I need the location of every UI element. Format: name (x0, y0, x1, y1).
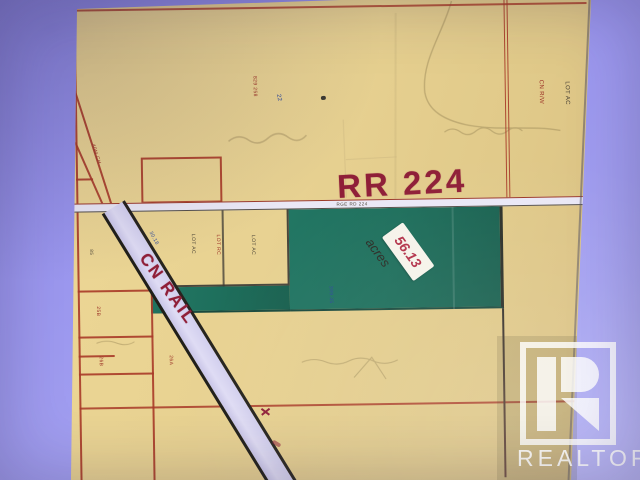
survey-dot (321, 96, 326, 100)
realtor-wordmark: REALTOR® (517, 445, 640, 472)
right-rail-row-label: CN R/W (538, 80, 544, 104)
dimension-label: 399.35 (328, 286, 334, 304)
right-lot-label: LOT AC (564, 81, 570, 105)
edge-step (76, 178, 93, 180)
tiny-label: 85 (89, 249, 94, 255)
tiny-label: 26B (98, 356, 104, 366)
tiny-label: 22 (275, 94, 282, 102)
realtor-r-bowl (561, 357, 599, 392)
lot-label: LOT AC (250, 235, 256, 255)
rail-red-mark (260, 407, 270, 416)
listing-photo: LOT AC LOT RC LOT AC 40M CH 829 258 22 (0, 0, 640, 480)
lot-label: LOT AC (190, 234, 196, 254)
tiny-label: 829 258 (252, 76, 258, 97)
parcel-outline-red (141, 156, 223, 203)
tiny-label: 25B (95, 306, 101, 316)
subject-parcel-main (289, 206, 504, 311)
lot-label-red: LOT RC (215, 234, 221, 255)
realtor-wordmark-text: REALTOR (517, 445, 640, 471)
tiny-label: 26A (168, 355, 174, 365)
rr224-label: RR 224 (336, 162, 468, 206)
realtor-logo: REALTOR® (510, 335, 640, 475)
realtor-r-stem (537, 357, 556, 431)
